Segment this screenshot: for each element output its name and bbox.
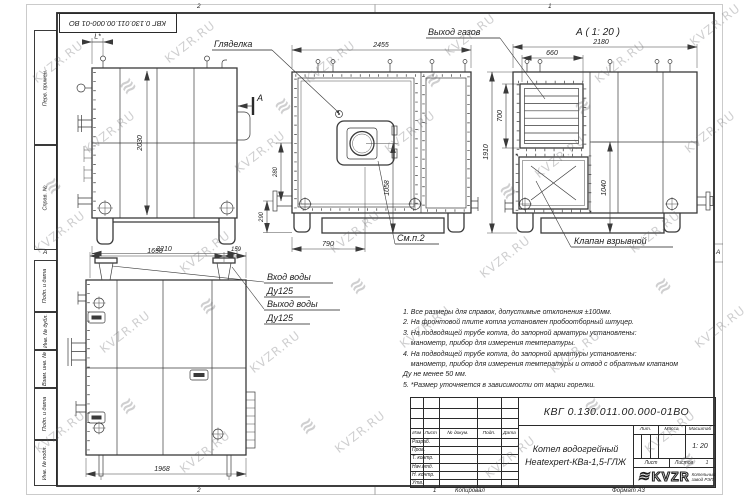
tb-company-cell: ≋ KVZR Котельный завод РЭП (633, 467, 715, 487)
lifting-lug-icon (205, 56, 210, 61)
dim-1968: 1968 (154, 466, 170, 473)
burner-plate (337, 121, 397, 165)
note-line: Ду не менее 50 мм. (403, 370, 705, 380)
note-line: 5. *Размер уточняется в зависимости от м… (403, 381, 705, 391)
tb-sign-prov: Пров. (412, 446, 439, 454)
tb-sign-tkontr: Т. контр. (412, 454, 439, 462)
tb-listov-value: 1 (699, 458, 715, 467)
tb-masshtab-label: Масштаб (685, 425, 715, 434)
dim-290: 290 (259, 211, 265, 223)
dim-2030: 2030 (137, 135, 144, 152)
note-line: 4. На подводящей трубе котла, до запорно… (403, 350, 705, 360)
label-klapan-vzryvnoj: Клапан взрывной (574, 236, 647, 246)
lifting-lug-icon (101, 56, 106, 61)
note-line: 1. Все размеры для справок, допустимые о… (403, 308, 705, 318)
section-letter-a: А (256, 93, 263, 103)
company-name-line2: завод РЭП (692, 477, 716, 483)
title-block: Изм Лист № докум. Подп. Дата Разраб. Про… (410, 397, 716, 488)
water-nozzle (95, 258, 117, 280)
note-line: 2. На фронтовой плите котла установлен п… (403, 318, 705, 328)
dim-2180: 2180 (592, 39, 609, 46)
tb-list-label: Лист (633, 458, 669, 467)
dim-790: 790 (322, 241, 334, 248)
tb-lit-label: Лит. (633, 425, 658, 434)
tb-product-name: Котел водогрейный Heatexpert-КВа-1,5-ГЛЖ (518, 425, 633, 487)
tb-product-name-line1: Котел водогрейный (533, 443, 619, 456)
label-section-view-title: А ( 1: 20 ) (575, 27, 620, 38)
dim-2455: 2455 (372, 42, 389, 49)
dim-1650: 1650 (147, 248, 163, 255)
label-vhod-du125: Ду125 (266, 286, 294, 296)
support-leg (219, 218, 235, 244)
tb-sign-nkontr: Н. контр. (412, 471, 439, 479)
label-sm-p2: См.п.2 (397, 233, 425, 243)
tb-header-list: Лист (423, 428, 440, 438)
label-vyhod-gazov: Выход газов (428, 27, 481, 37)
kvzr-logo: KVZR (652, 470, 690, 484)
dim-700: 700 (497, 110, 504, 122)
note-line: манометр, прибор для измерения температу… (403, 339, 705, 349)
dim-1910: 1910 (483, 144, 490, 160)
dim-1040: 1040 (601, 180, 608, 196)
tb-sign-utv: Утв. (412, 479, 439, 487)
tb-massa-label: Масса (658, 425, 685, 434)
kvzr-wave-icon: ≋ (637, 472, 650, 482)
company-name: Котельный завод РЭП (692, 472, 716, 483)
view-side-bottom: 1650 159 1968 Вход воды Ду125 Выход воды… (68, 247, 340, 480)
tb-header-ndokum: № докум. (439, 428, 477, 438)
technical-notes: 1. Все размеры для справок, допустимые о… (403, 308, 705, 391)
dim-660: 660 (546, 50, 558, 57)
label-vyhod-vody: Выход воды (267, 299, 318, 309)
dim-280: 280 (273, 166, 279, 178)
tb-doc-number: КВГ 0.130.011.00.000-01ВО (518, 398, 715, 425)
tb-header-data: Дата (501, 428, 518, 438)
label-vhod-vody: Вход воды (267, 272, 311, 282)
label-vyhod-du125: Ду125 (266, 313, 294, 323)
tb-header-podp: Подп. (477, 428, 501, 438)
dim-159: 159 (231, 247, 242, 253)
dim-l-star: L* (94, 34, 101, 41)
tb-listov-label: Листов (669, 458, 699, 467)
support-leg (97, 218, 113, 244)
dim-1058: 1058 (384, 180, 391, 196)
tb-sign-nachotd: Нач.отд. (412, 463, 439, 471)
explosion-valve-panel (517, 155, 590, 211)
view-side-left: 2030 2210 L* 290 А (77, 34, 292, 258)
door-bracket (237, 112, 250, 140)
tb-product-name-line2: Heatexpert-КВа-1,5-ГЛЖ (525, 456, 626, 469)
drawing-sheet: 2030 2210 L* 290 А (0, 0, 750, 500)
note-line: 3. На подводящей трубе котла, до запорно… (403, 329, 705, 339)
tb-header-izm: Изм (411, 428, 423, 438)
view-rear-section-a: А ( 1: 20 ) (497, 27, 713, 247)
tb-sign-razrab: Разраб. (412, 438, 439, 446)
note-line: манометр, прибор для измерения температу… (403, 360, 705, 370)
gas-outlet-grille (518, 82, 585, 150)
label-gljadelka: Гляделка (214, 39, 252, 49)
tb-scale-value: 1: 20 (685, 434, 715, 458)
